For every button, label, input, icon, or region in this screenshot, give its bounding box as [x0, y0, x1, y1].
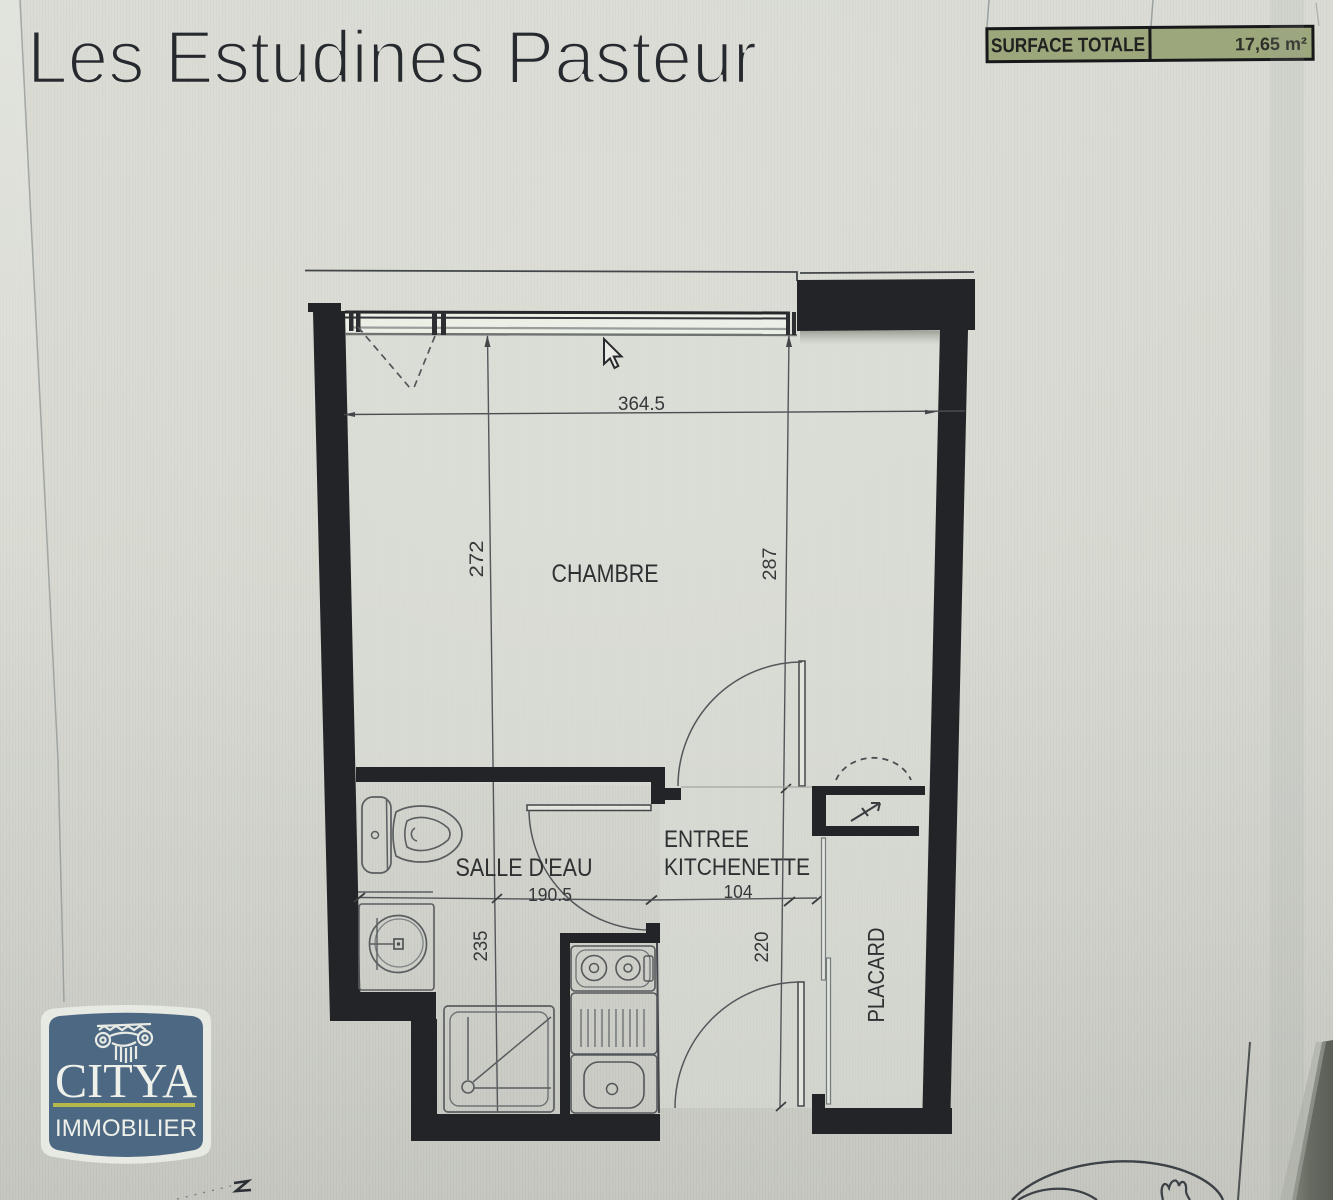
svg-text:364.5: 364.5 [618, 393, 665, 415]
svg-text:CITYA: CITYA [55, 1053, 198, 1108]
svg-text:SALLE D'EAU: SALLE D'EAU [456, 854, 593, 882]
svg-text:272: 272 [466, 541, 488, 578]
svg-text:CHAMBRE: CHAMBRE [552, 560, 659, 588]
svg-text:287: 287 [759, 548, 781, 581]
svg-text:235: 235 [471, 931, 492, 962]
svg-text:ENTREE: ENTREE [664, 826, 749, 853]
svg-text:104: 104 [724, 882, 753, 902]
svg-text:PLACARD: PLACARD [863, 928, 889, 1023]
svg-text:Les Estudines Pasteur: Les Estudines Pasteur [27, 15, 757, 99]
svg-text:190.5: 190.5 [528, 885, 572, 905]
svg-text:KITCHENETTE: KITCHENETTE [664, 854, 810, 881]
svg-text:IMMOBILIER: IMMOBILIER [55, 1115, 197, 1142]
svg-text:SURFACE TOTALE: SURFACE TOTALE [991, 34, 1145, 57]
svg-text:220: 220 [752, 932, 773, 963]
